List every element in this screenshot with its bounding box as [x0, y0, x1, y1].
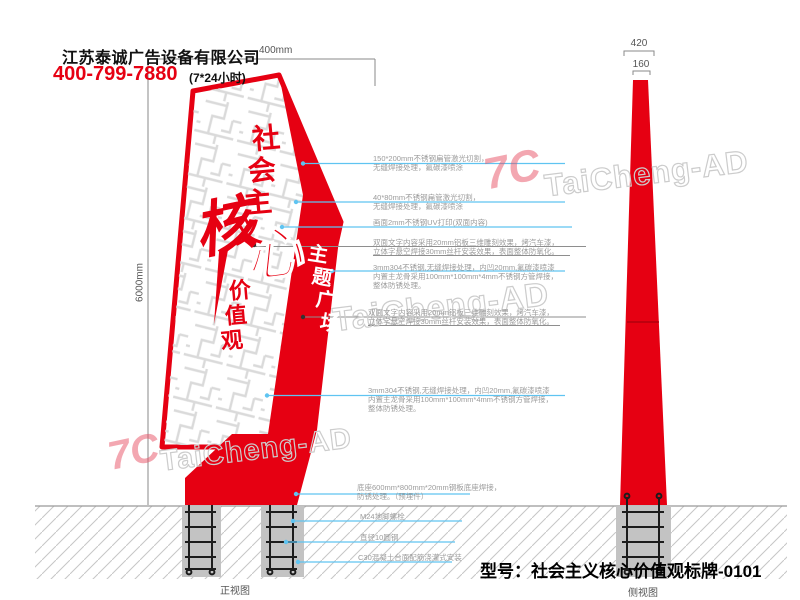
sign-title-char: 会 — [247, 156, 277, 186]
dimension-side-cap: 160 — [626, 59, 656, 70]
front-view-label: 正视图 — [205, 582, 265, 597]
sign-band-char: 场 — [319, 313, 342, 336]
annotation-callout: 底座600mm*800mm*20mm钢板底座焊接，防锈处理。（预埋件） — [357, 483, 501, 501]
sign-band-char: 题 — [311, 267, 334, 290]
annotation-callout: 直径10圆钢 — [360, 533, 398, 542]
annotation-callout: C30混凝土台面配筋浇灌式安装 — [358, 553, 462, 562]
dimension-side-width: 420 — [621, 38, 657, 49]
dimension-height: 6000mm — [135, 253, 146, 313]
sign-value-char: 价 — [228, 279, 252, 303]
annotation-callout: 3mm304不锈钢,无缝焊接处理，内凹20mm,氟碳漆喷漆内置主龙骨采用100m… — [368, 386, 553, 413]
phone-number: 400-799-7880 — [53, 63, 178, 86]
sign-band-char: 主 — [307, 244, 330, 267]
design-drawing-canvas: 7C TaiCheng-AD TaiCheng-AD 7C TaiCheng-A… — [0, 0, 800, 600]
model-number-line: 型号：社会主义核心价值观标牌-0101 — [480, 557, 761, 582]
annotation-callout: 双面文字内容采用20mm铝板三维雕刻效果，烤汽车漆，立体字悬空焊接30mm丝杆安… — [373, 238, 559, 256]
watermark-logo: 7C — [480, 143, 544, 198]
sign-core-char: 心 — [241, 223, 305, 287]
service-hours: (7*24小时) — [189, 69, 246, 86]
annotation-callout: 画面2mm不锈钢UV打印(双面内容) — [373, 218, 488, 227]
dimension-top-width: 400mm — [259, 45, 292, 56]
annotation-callout: 3mm304不锈钢,无缝焊接处理，内凹20mm,氟碳漆喷漆内置主龙骨采用100m… — [373, 263, 558, 290]
sign-value-char: 观 — [220, 329, 244, 353]
side-pole — [620, 80, 667, 505]
sign-value-char: 值 — [224, 304, 248, 328]
annotation-callout: M24地脚螺栓 — [360, 512, 405, 521]
annotation-callout: 双面文字内容采用20mm铝板三维雕刻效果，烤汽车漆，立体字悬空焊接30mm丝杆安… — [368, 308, 554, 326]
side-view-label: 侧视图 — [613, 584, 673, 599]
sign-title-char: 社 — [251, 124, 281, 154]
watermark-logo: 7C — [104, 427, 162, 477]
annotation-callout: 150*200mm不锈钢扁管激光切割，无缝焊接处理，氟碳漆喷涂 — [373, 154, 488, 172]
annotation-callout: 40*80mm不锈钢扁管激光切割，无缝焊接处理，氟碳漆喷涂 — [373, 193, 480, 211]
sign-band-char: 广 — [315, 290, 338, 313]
